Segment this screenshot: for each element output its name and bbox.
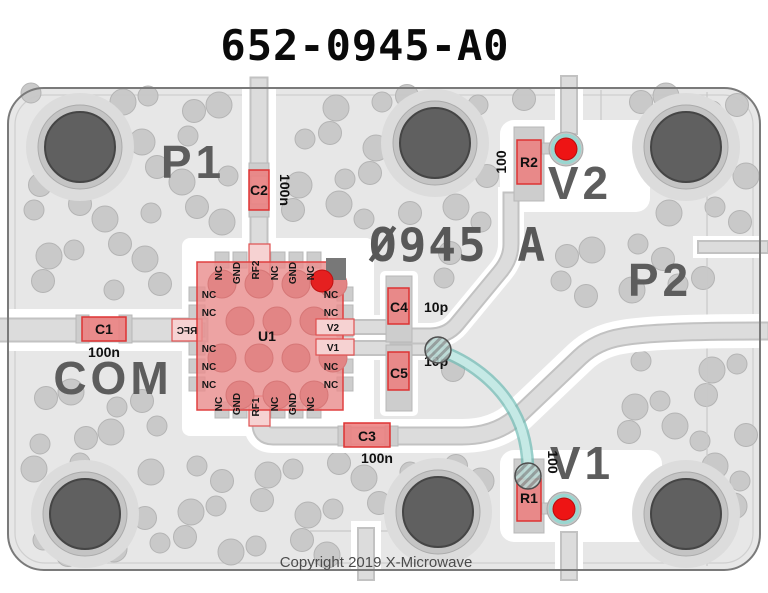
refdes-c4: C4 <box>390 299 408 315</box>
via <box>211 470 234 493</box>
refdes-r2: R2 <box>520 154 538 170</box>
via <box>656 200 682 226</box>
via <box>178 499 204 525</box>
pin-label: NC <box>324 308 338 319</box>
via <box>295 129 315 149</box>
pin-label: NC <box>324 290 338 301</box>
via <box>575 285 598 308</box>
testpoint-v1 <box>547 492 581 526</box>
via <box>443 194 469 220</box>
via <box>295 502 321 528</box>
via <box>513 88 536 111</box>
via <box>335 169 355 189</box>
via <box>359 162 382 185</box>
value-c1: 100n <box>88 344 120 360</box>
pin-label: NC <box>306 266 317 280</box>
via <box>551 271 571 291</box>
screenshot-root: 652-0945-A0 <box>0 0 768 593</box>
via <box>556 245 579 268</box>
via <box>251 489 274 512</box>
hatched-via-start <box>425 337 451 363</box>
silkscreen-p1: P1 <box>161 136 225 188</box>
pin-label: NC <box>270 266 281 280</box>
mounting-hole-tm <box>381 89 489 197</box>
silkscreen-v2: V2 <box>548 157 612 209</box>
via <box>150 533 170 553</box>
value-c4: 10p <box>424 299 448 315</box>
pin-label: NC <box>306 397 317 411</box>
value-r1: 100 <box>545 450 561 474</box>
via <box>631 351 651 371</box>
thermal-via <box>282 344 310 372</box>
silkscreen-p2: P2 <box>628 254 692 306</box>
via <box>328 452 351 475</box>
via <box>579 237 605 263</box>
via <box>692 267 715 290</box>
mounting-hole-br <box>632 460 740 568</box>
via <box>323 499 343 519</box>
refdes-c2: C2 <box>250 182 268 198</box>
via <box>283 459 303 479</box>
via <box>662 413 688 439</box>
via <box>727 354 747 374</box>
via <box>104 280 124 300</box>
pin-label: NC <box>214 397 225 411</box>
via <box>98 419 124 445</box>
pin-label: NC <box>202 362 216 373</box>
hatched-via-end <box>515 463 541 489</box>
via <box>141 203 161 223</box>
thermal-via <box>245 344 273 372</box>
pin-label: GND <box>232 262 243 284</box>
via <box>183 100 206 123</box>
via <box>618 421 641 444</box>
mounting-hole-bm <box>384 458 492 566</box>
via <box>174 526 197 549</box>
value-c2: 100n <box>277 174 293 206</box>
page-title: 652-0945-A0 <box>220 21 509 70</box>
pcb-layout-svg: 652-0945-A0 <box>0 0 768 593</box>
refdes-c3: C3 <box>358 428 376 444</box>
thermal-via <box>226 307 254 335</box>
via <box>64 240 84 260</box>
pin-label: NC <box>202 344 216 355</box>
pin-label: GND <box>232 393 243 415</box>
mounting-hole-tl <box>26 93 134 201</box>
pin-label: GND <box>288 262 299 284</box>
refdes-r1: R1 <box>520 490 538 506</box>
pin-label: RF2 <box>251 260 262 279</box>
via <box>246 536 266 556</box>
pin-label: GND <box>288 393 299 415</box>
pin-label: NC <box>214 266 225 280</box>
via <box>326 191 352 217</box>
via <box>206 92 232 118</box>
via <box>351 465 377 491</box>
via <box>622 394 648 420</box>
via <box>255 462 281 488</box>
mounting-hole-tr <box>632 93 740 201</box>
via <box>729 211 752 234</box>
via <box>32 270 55 293</box>
via <box>695 384 718 407</box>
via <box>726 94 749 117</box>
silkscreen-marking: Ø945 A <box>368 218 547 272</box>
via <box>36 243 62 269</box>
via <box>92 206 118 232</box>
via <box>30 434 50 454</box>
via <box>628 234 648 254</box>
via <box>149 273 172 296</box>
pin-label: NC <box>324 380 338 391</box>
via <box>372 92 392 112</box>
pin-label: NC <box>202 380 216 391</box>
via <box>733 163 759 189</box>
via <box>206 496 226 516</box>
via <box>75 427 98 450</box>
via <box>319 122 342 145</box>
pin-label: NC <box>202 308 216 319</box>
pin-label: NC <box>324 362 338 373</box>
via <box>21 456 47 482</box>
pin-label: V1 <box>327 343 340 354</box>
via <box>705 197 725 217</box>
via <box>323 95 349 121</box>
via <box>186 196 209 219</box>
via <box>650 391 670 411</box>
via <box>138 459 164 485</box>
via <box>132 246 158 272</box>
via <box>147 416 167 436</box>
via <box>735 424 758 447</box>
testpoint-v2 <box>549 132 583 166</box>
value-c3: 100n <box>361 450 393 466</box>
via <box>209 209 235 235</box>
via <box>109 233 132 256</box>
pin-label: RF1 <box>251 397 262 416</box>
pin-label: V2 <box>327 323 340 334</box>
via <box>187 456 207 476</box>
via <box>291 529 314 552</box>
pin-label-mirrored: RFC <box>177 326 198 337</box>
value-r2: 100 <box>493 150 509 174</box>
chip-refdes: U1 <box>258 328 276 344</box>
pin-label: NC <box>270 397 281 411</box>
refdes-c1: C1 <box>95 321 113 337</box>
refdes-c5: C5 <box>390 365 408 381</box>
via <box>218 539 244 565</box>
chip-u1: U1 NC GND RF2 NC GND NC NC GND RF1 NC GN… <box>172 244 354 426</box>
via <box>24 200 44 220</box>
copyright-text: Copyright 2019 X-Microwave <box>280 554 473 571</box>
via <box>699 357 725 383</box>
mounting-hole-bl <box>31 460 139 568</box>
pin-label: NC <box>202 290 216 301</box>
